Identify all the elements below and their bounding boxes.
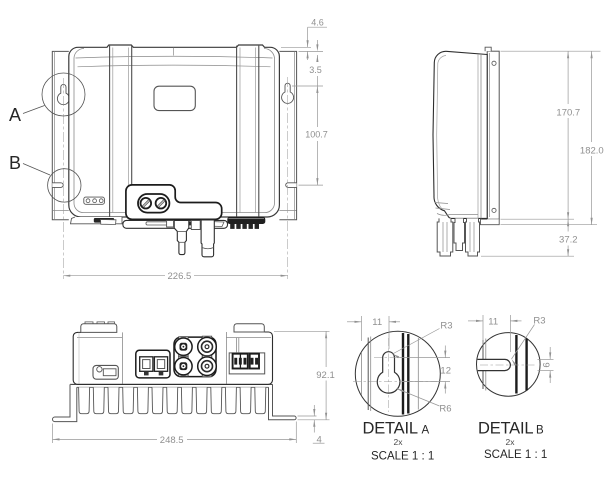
svg-text:SCALE 1 : 1: SCALE 1 : 1 bbox=[484, 449, 547, 461]
svg-text:4: 4 bbox=[317, 434, 322, 445]
svg-text:R6: R6 bbox=[439, 404, 451, 415]
svg-text:170.7: 170.7 bbox=[556, 108, 580, 119]
svg-text:226.5: 226.5 bbox=[168, 271, 192, 282]
svg-text:B: B bbox=[536, 425, 544, 437]
svg-text:DETAIL: DETAIL bbox=[363, 419, 418, 437]
svg-text:DETAIL: DETAIL bbox=[478, 420, 533, 438]
svg-text:2x: 2x bbox=[506, 437, 516, 447]
svg-text:4.6: 4.6 bbox=[311, 18, 324, 28]
svg-text:A: A bbox=[422, 424, 430, 436]
svg-text:11: 11 bbox=[488, 316, 498, 327]
svg-text:100.7: 100.7 bbox=[305, 130, 328, 140]
svg-text:B: B bbox=[9, 153, 21, 173]
svg-text:3.5: 3.5 bbox=[309, 65, 322, 75]
svg-text:12: 12 bbox=[440, 366, 451, 377]
svg-text:R3: R3 bbox=[533, 315, 545, 326]
svg-text:SCALE 1 : 1: SCALE 1 : 1 bbox=[371, 450, 434, 462]
svg-text:6: 6 bbox=[542, 362, 553, 367]
svg-text:11: 11 bbox=[372, 317, 382, 328]
svg-text:92.1: 92.1 bbox=[316, 370, 335, 381]
svg-text:A: A bbox=[9, 105, 21, 125]
svg-text:2x: 2x bbox=[394, 437, 404, 447]
svg-text:37.2: 37.2 bbox=[559, 234, 578, 245]
svg-text:R3: R3 bbox=[440, 320, 452, 331]
svg-text:248.5: 248.5 bbox=[160, 435, 184, 446]
svg-text:182.0: 182.0 bbox=[580, 146, 604, 157]
